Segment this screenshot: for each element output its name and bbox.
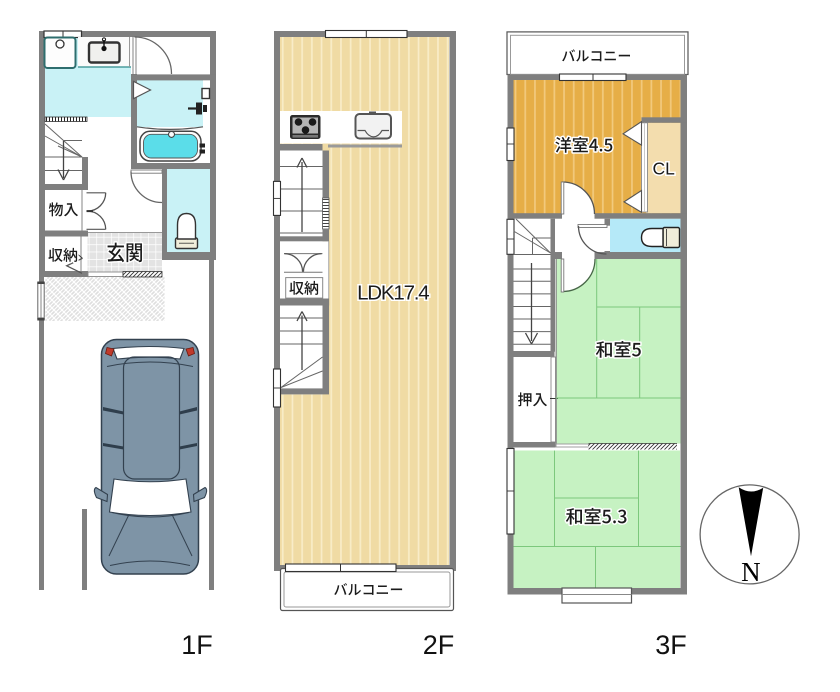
svg-text:1F: 1F [181,630,213,660]
svg-text:N: N [741,557,761,587]
svg-text:2F: 2F [423,630,455,660]
svg-text:LDK17.4: LDK17.4 [357,282,429,305]
svg-text:CL: CL [653,159,676,179]
svg-text:3F: 3F [655,630,687,660]
